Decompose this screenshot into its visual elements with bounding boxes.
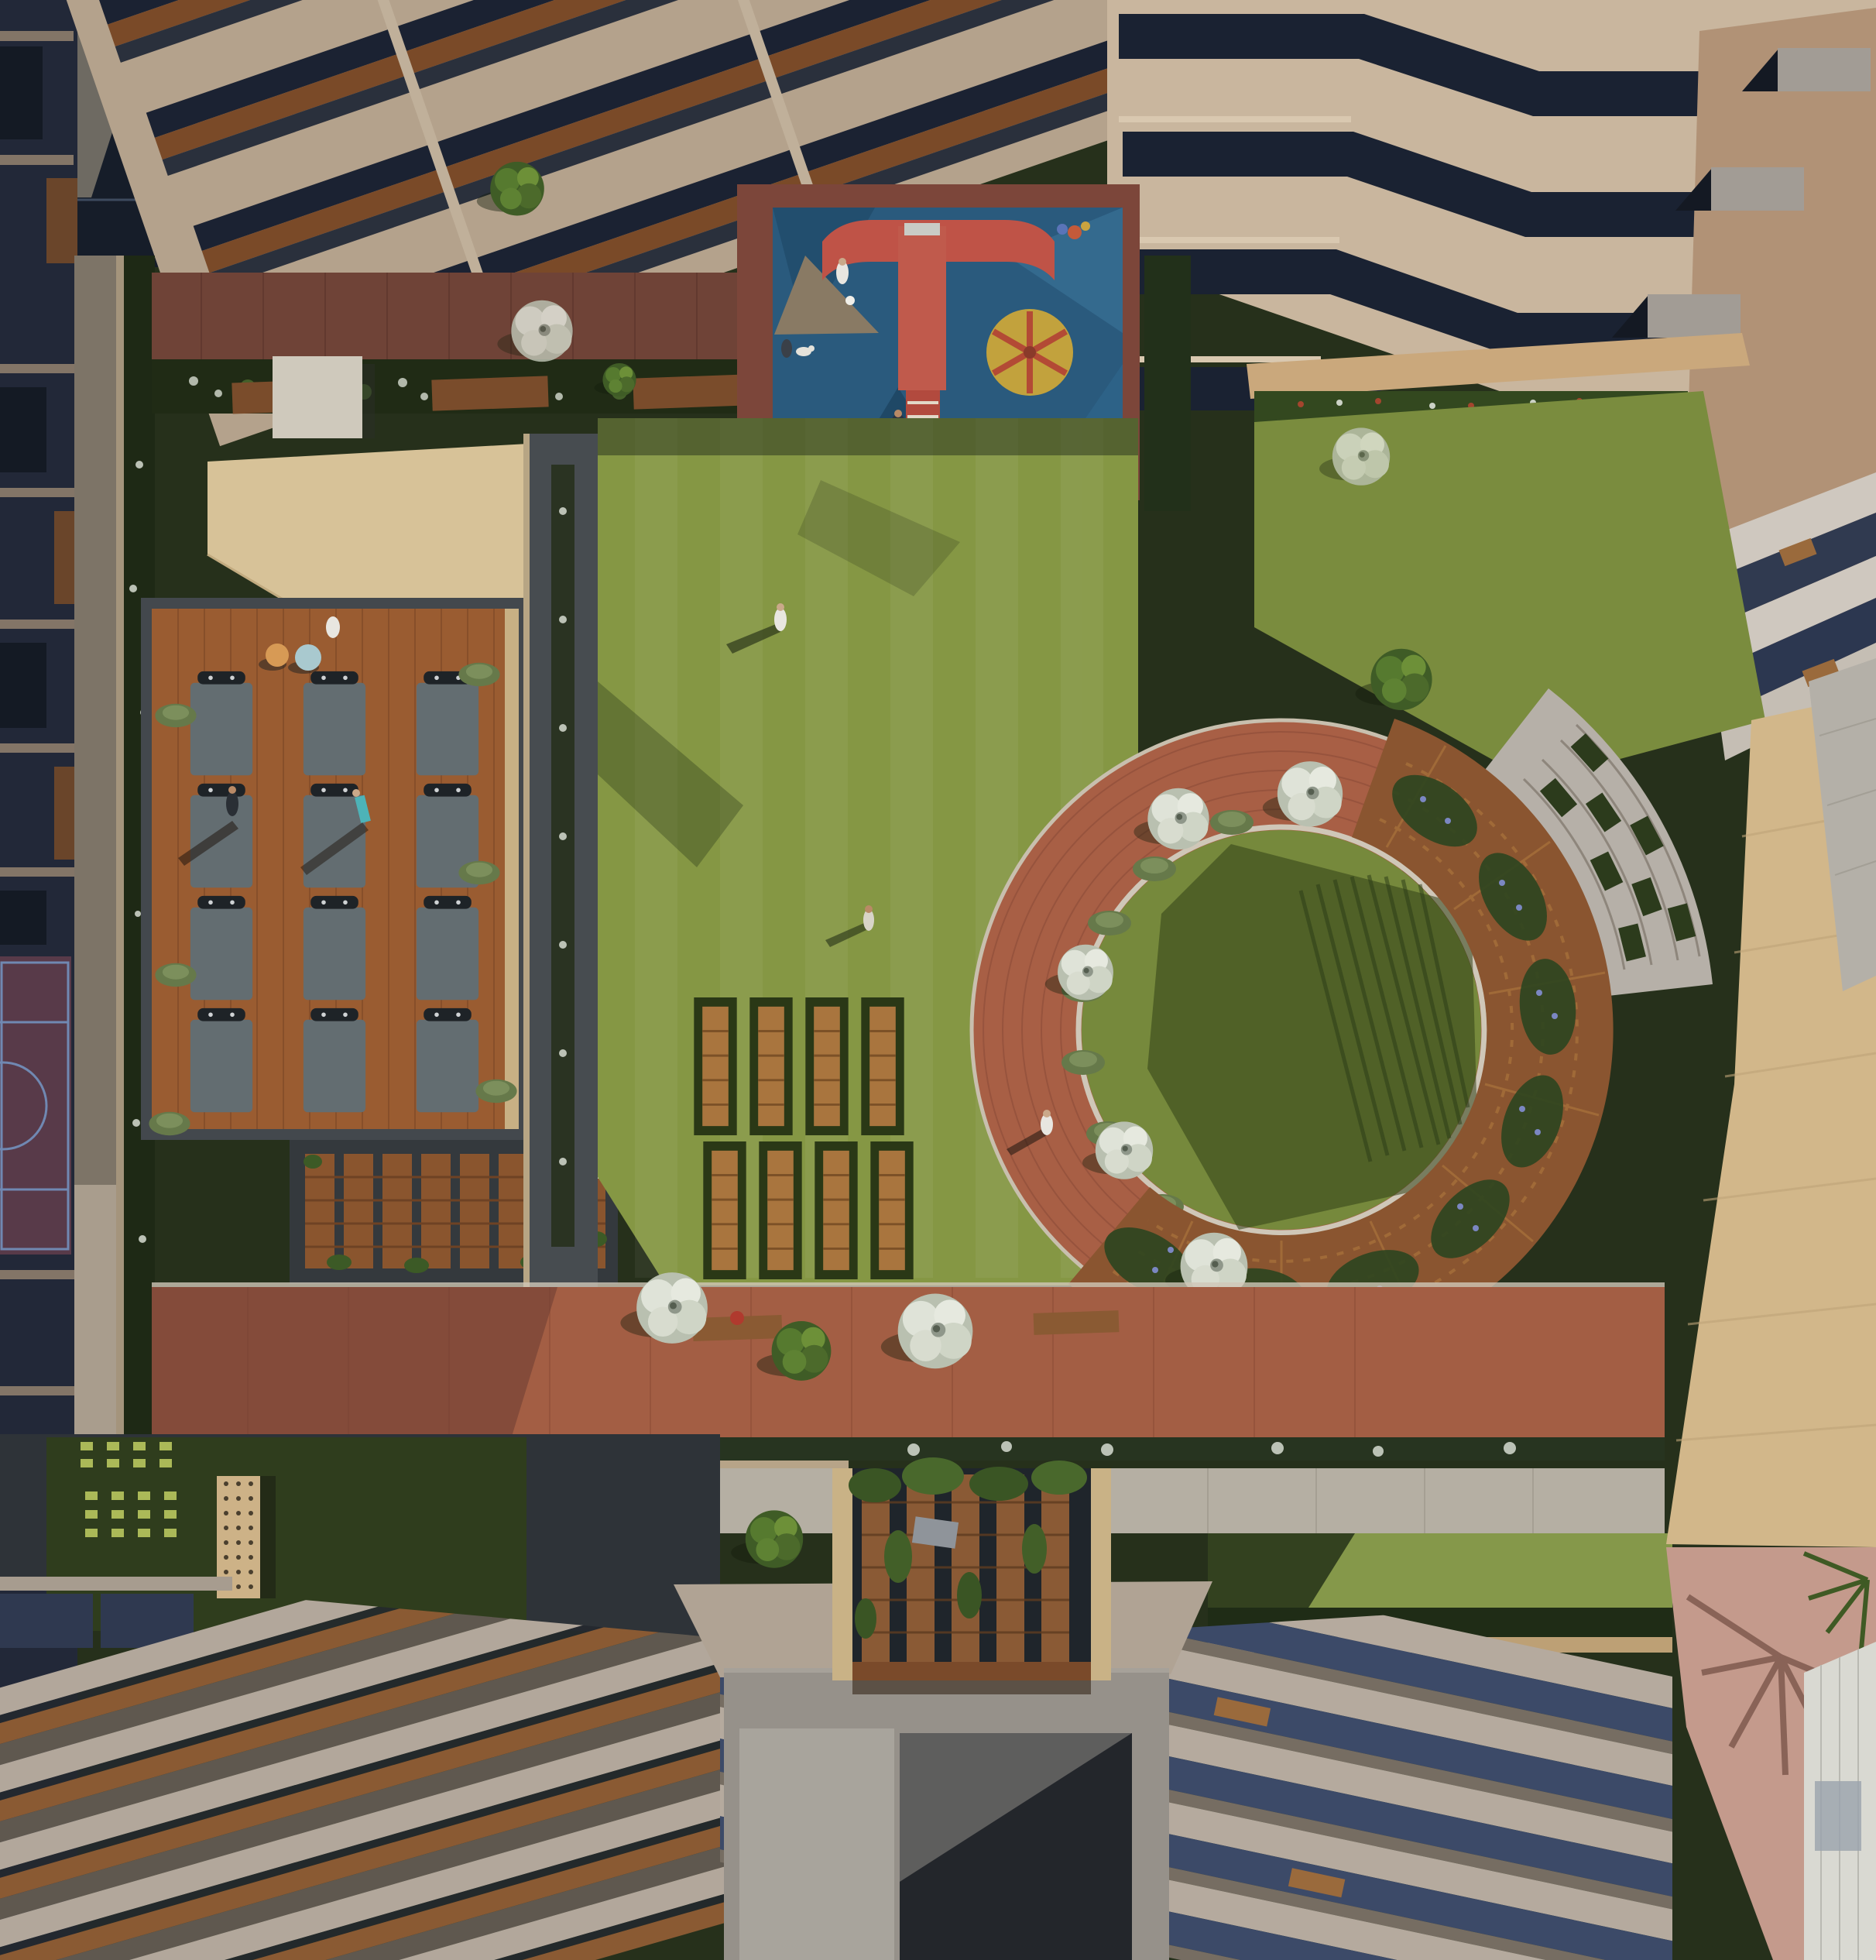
light-walkway <box>588 1468 1665 1533</box>
yoga-deck <box>141 598 530 1140</box>
render-canvas <box>0 0 1876 1960</box>
entrance-pergola <box>832 1457 1111 1694</box>
hedge-right-of-playground <box>1144 256 1191 511</box>
basketball-court <box>0 956 71 1255</box>
top-brick-path <box>152 273 739 359</box>
path-shade <box>152 1287 557 1439</box>
entrance-box <box>273 356 362 438</box>
seated-person-red <box>730 1311 744 1325</box>
aerial-courtyard-render <box>0 0 1876 1960</box>
roundabout <box>986 309 1073 396</box>
